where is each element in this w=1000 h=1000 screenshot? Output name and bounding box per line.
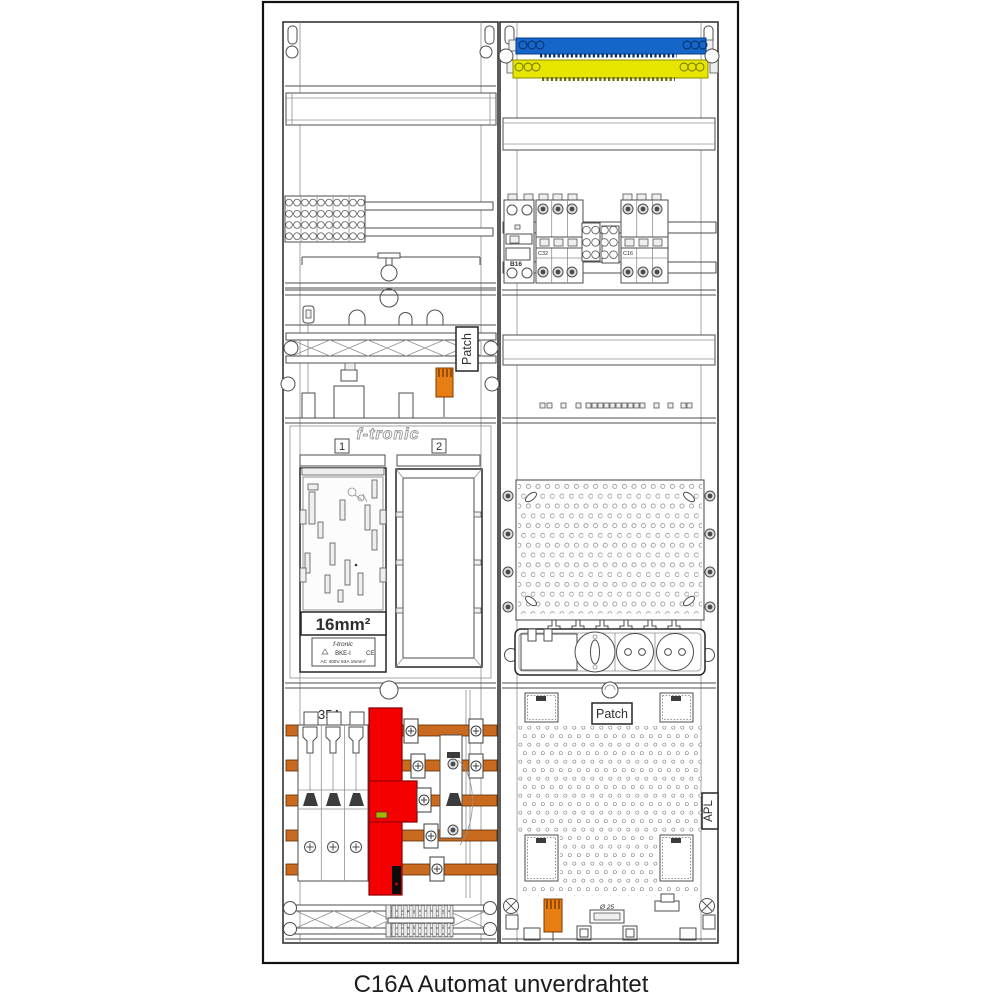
meter-position-2: 2 [436,441,442,453]
apl-cutout-tl [525,693,558,722]
patch-flag-left: Patch [456,327,478,371]
meter-plate-2 [396,469,482,667]
patch-label-right: Patch [596,707,628,721]
apl-flag: APL [702,793,718,829]
socket-strip [505,629,715,675]
brand-text: f-tronic [356,426,419,443]
caption: C16A Automat unverdrahtet [354,971,649,998]
apl-cutout-tr [660,693,693,722]
meter-position-1: 1 [339,441,345,453]
mcb-c32: C32 [536,200,583,283]
perforated-plate [503,480,715,632]
din-rail-top-left [286,93,496,125]
rcbo-label: B16 [510,261,522,268]
apl-cutout-br [660,835,693,881]
breaker-terminal-blocks [582,223,619,263]
adapter-rating: AC 400V 63A 16mm² [320,659,365,665]
socket-schuko-1 [617,634,654,671]
meter-cabinet-drawing: Patch f-tronic 1 2 [0,0,1000,1000]
patch-label-left: Patch [460,333,474,365]
mcb-c16: C16 [621,200,668,283]
adapter-info-label: f-tronic BKE-I CE AC 400V 63A 16mm² [312,638,375,666]
comb-terminal-strip [386,905,454,937]
patch-flag-right: Patch [592,703,632,724]
sls-indicator [376,812,387,818]
cross-section-label: 16mm² [316,615,371,634]
socket-schuko-2 [657,634,694,671]
mcb-right-label: C16 [623,251,633,257]
pe-rail [513,60,708,79]
adapter-model: BKE-I [335,651,351,657]
mcb-left-label: C32 [538,251,548,257]
sls-switch [298,712,368,881]
din-rail-mid-right [503,335,715,365]
socket-round [575,632,615,672]
meter-plate-1: 16mm² f-tronic BKE-I CE AC 400V 63A 16mm… [300,468,386,672]
adapter-brand: f-tronic [333,641,354,648]
rcbo-b16: B16 [504,200,534,283]
profile-slot [288,26,297,44]
sls-slot [392,866,401,894]
ce-mark: CE [366,651,374,657]
apl-label: APL [703,800,715,822]
neutral-rail [516,38,707,56]
din-rail-top-right [503,118,715,150]
apl-cutout-bl [525,835,558,881]
knockout-square-row [540,403,692,408]
